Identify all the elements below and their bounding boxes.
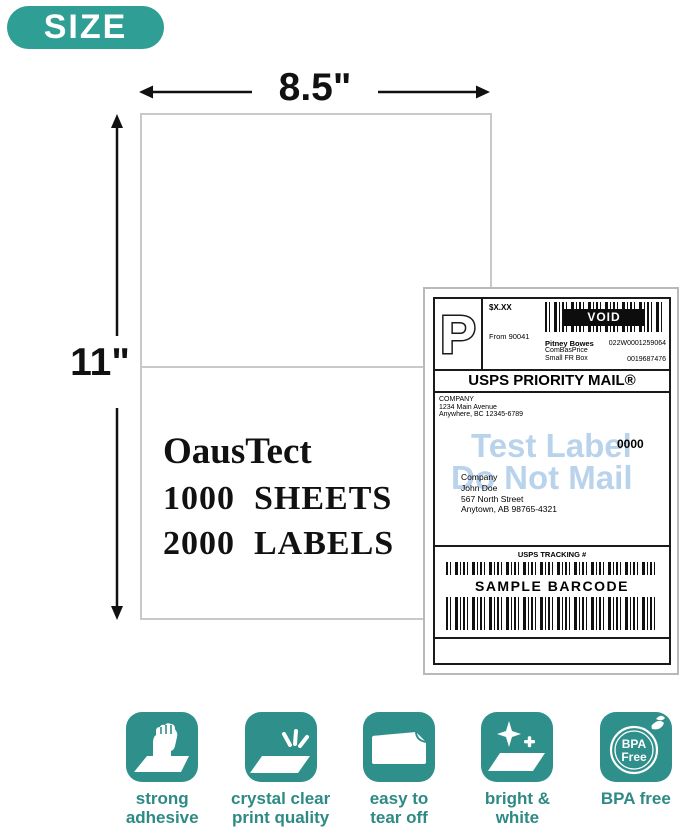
feature-crystal-clear: crystal clear print quality (221, 712, 339, 827)
shipping-label: P $X.XX From 90041 VOID Pitney Bowes Com… (433, 297, 671, 665)
recipient-line: John Doe (461, 483, 557, 494)
brand-name: OausTect (163, 430, 312, 473)
recipient-line: 567 North Street (461, 494, 557, 505)
feature-label: tear off (370, 808, 429, 827)
feature-strong-adhesive: strong adhesive (103, 712, 221, 827)
tracking-barcode-top (446, 562, 658, 575)
address-section: COMPANY 1234 Main Avenue Anywhere, BC 12… (435, 393, 669, 545)
rate-type: ComBasPrice (545, 347, 588, 354)
feature-label: print quality (231, 808, 330, 827)
feature-label: crystal clear (231, 789, 330, 808)
box-type: Small FR Box (545, 355, 588, 362)
outer-height-value: 11" (60, 341, 140, 385)
priority-p-mark: P (435, 299, 483, 369)
feature-label: BPA free (601, 789, 671, 808)
size-badge: SIZE (7, 6, 164, 49)
svg-text:BPA: BPA (622, 737, 647, 751)
label-count: 2000 LABELS (163, 525, 394, 563)
tracking-header: USPS TRACKING # (435, 550, 669, 559)
recipient-line: Anytown, AB 98765-4321 (461, 504, 557, 515)
feature-label: bright & (485, 789, 550, 808)
postage-price: $X.XX (489, 303, 512, 312)
tracking-barcode-bottom (446, 597, 658, 630)
feature-label: easy to (370, 789, 429, 808)
feature-label: adhesive (126, 808, 199, 827)
sender-line: 1234 Main Avenue (439, 404, 523, 412)
feature-bright-white: bright & white (458, 712, 576, 827)
origin-zip: From 90041 (489, 332, 529, 341)
tracking-section: USPS TRACKING # SAMPLE BARCODE (435, 545, 669, 637)
sender-line: COMPANY (439, 396, 523, 404)
barcode-caption: SAMPLE BARCODE (435, 578, 669, 594)
void-barcode: VOID (545, 302, 663, 332)
sheet-count: 1000 SHEETS (163, 480, 392, 518)
feature-row: strong adhesive crystal clear print qual… (103, 712, 679, 827)
svg-text:Free: Free (621, 750, 647, 764)
sparkle-sheet-icon (245, 712, 317, 782)
feature-easy-tear: easy to tear off (340, 712, 458, 827)
feature-label: white (485, 808, 550, 827)
recipient-address: Company John Doe 567 North Street Anytow… (461, 472, 557, 515)
bright-sheet-icon (481, 712, 553, 782)
shipping-label-card: P $X.XX From 90041 VOID Pitney Bowes Com… (423, 287, 679, 675)
svg-text:P: P (440, 305, 476, 365)
serial-number: 0019687476 (627, 356, 666, 363)
tear-off-sheet-icon (363, 712, 435, 782)
sender-line: Anywhere, BC 12345-6789 (439, 411, 523, 419)
sender-address: COMPANY 1234 Main Avenue Anywhere, BC 12… (439, 396, 523, 419)
feature-label: strong (126, 789, 199, 808)
label-footer-strip (435, 637, 669, 663)
void-stamp: VOID (563, 309, 645, 326)
fist-adhesive-icon (126, 712, 198, 782)
bpa-free-circle-icon: BPA Free (600, 712, 672, 782)
outer-width-value: 8.5" (250, 66, 380, 110)
label-header-section: P $X.XX From 90041 VOID Pitney Bowes Com… (435, 299, 669, 369)
meter-number: 022W0001259064 (609, 340, 666, 347)
feature-bpa-free: BPA Free BPA free (577, 712, 679, 827)
service-banner: USPS PRIORITY MAIL® (435, 369, 669, 393)
recipient-line: Company (461, 472, 557, 483)
p-outline-glyph: P (437, 303, 479, 365)
product-size-graphic: { "badge": { "label": "SIZE" }, "diagram… (0, 0, 679, 834)
zip-code: 0000 (617, 437, 644, 451)
